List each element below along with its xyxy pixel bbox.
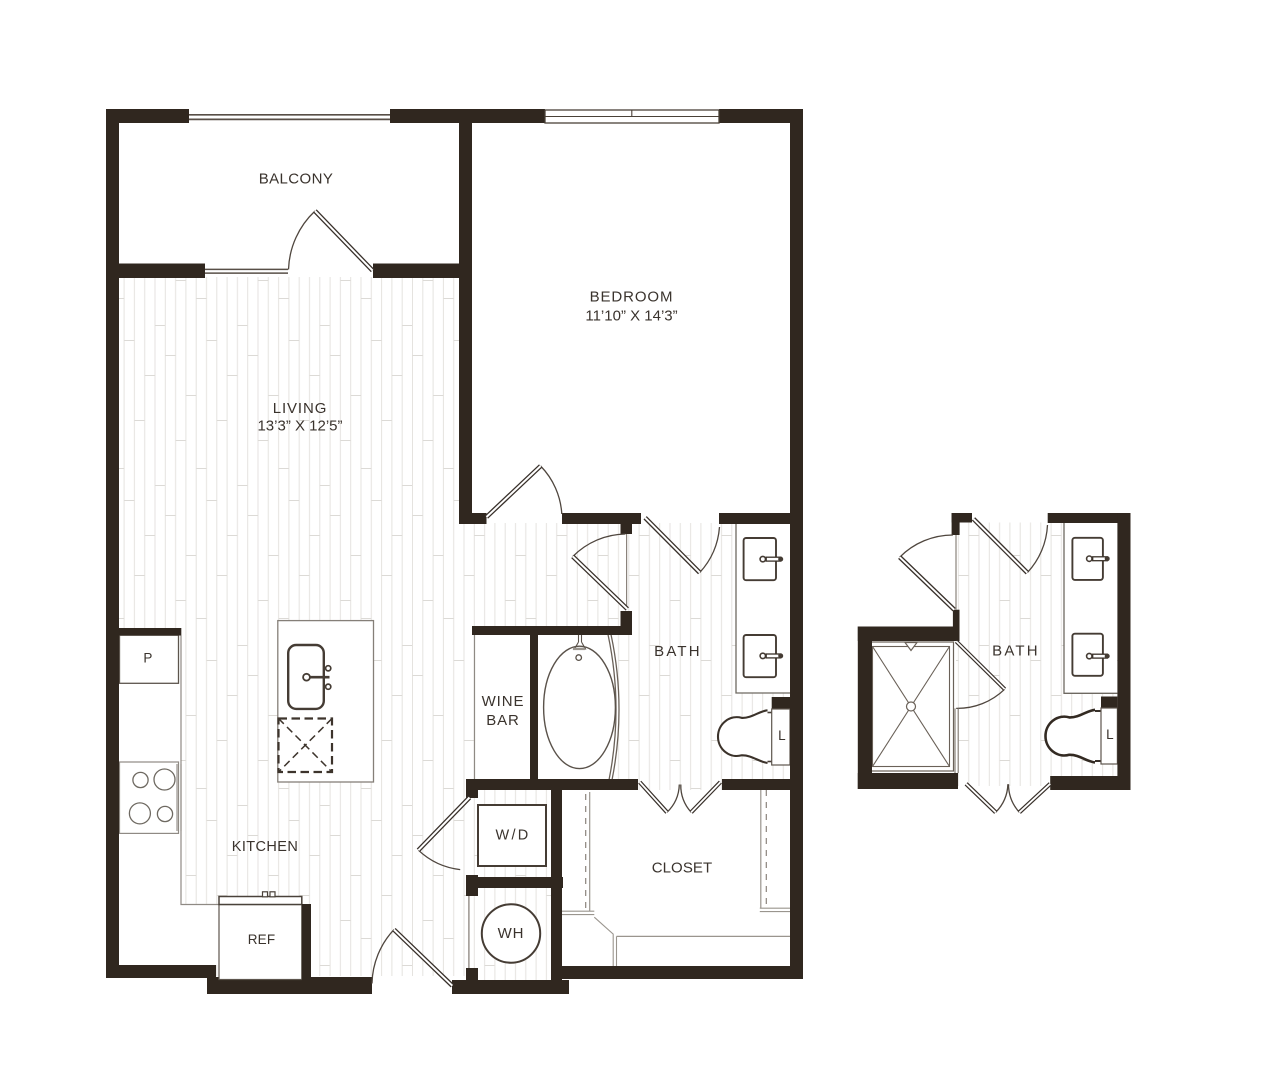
svg-text:KITCHEN: KITCHEN bbox=[232, 839, 298, 855]
svg-text:WINE: WINE bbox=[482, 693, 525, 710]
svg-text:CLOSET: CLOSET bbox=[652, 860, 713, 877]
svg-text:REF: REF bbox=[248, 932, 276, 947]
svg-text:BATH: BATH bbox=[654, 643, 702, 660]
svg-text:13’3” X 12’5”: 13’3” X 12’5” bbox=[257, 418, 342, 435]
svg-text:L: L bbox=[778, 728, 786, 743]
svg-text:LIVING: LIVING bbox=[273, 400, 328, 417]
svg-text:BAR: BAR bbox=[486, 712, 520, 729]
svg-text:BALCONY: BALCONY bbox=[259, 171, 334, 188]
svg-text:11’10” X 14’3”: 11’10” X 14’3” bbox=[585, 308, 677, 325]
svg-text:WH: WH bbox=[498, 925, 525, 942]
svg-text:W/D: W/D bbox=[495, 828, 530, 844]
svg-text:L: L bbox=[1106, 727, 1114, 742]
svg-text:BEDROOM: BEDROOM bbox=[590, 289, 674, 306]
svg-text:P: P bbox=[143, 651, 152, 666]
svg-text:BATH: BATH bbox=[992, 643, 1040, 660]
